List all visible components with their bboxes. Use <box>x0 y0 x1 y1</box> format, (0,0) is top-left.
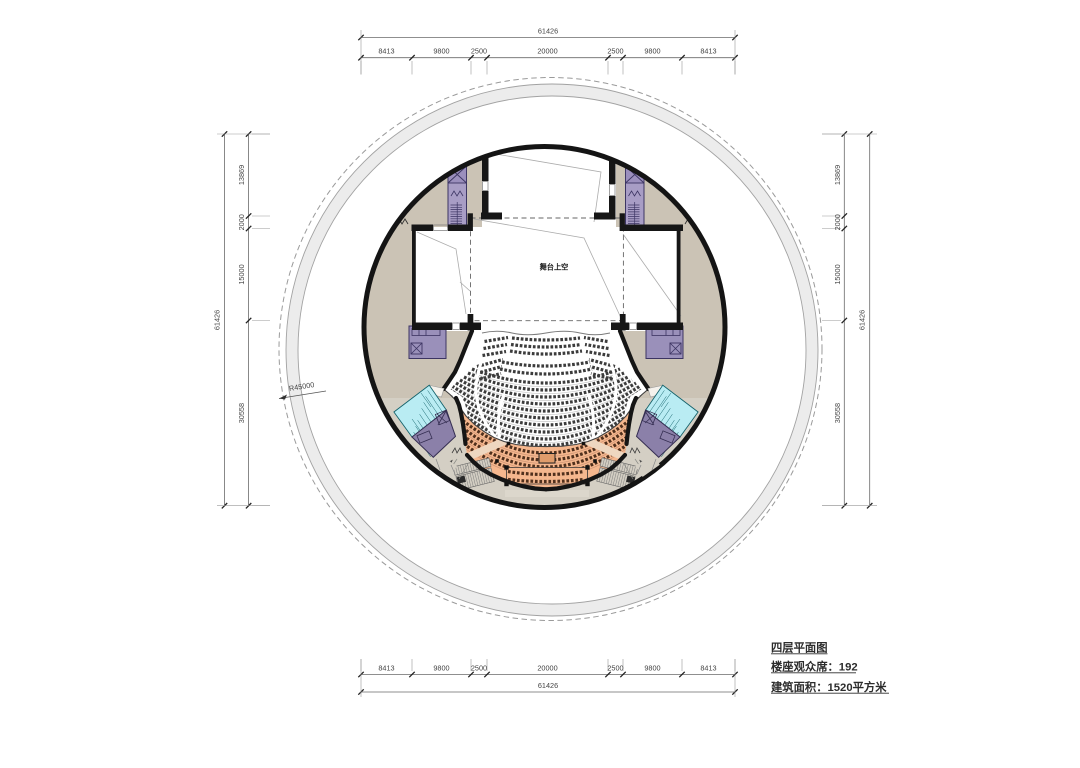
svg-text:15000: 15000 <box>237 264 246 284</box>
svg-text:9800: 9800 <box>644 47 660 56</box>
svg-text:2000: 2000 <box>833 214 842 230</box>
svg-text:2500: 2500 <box>607 47 623 56</box>
svg-text:20000: 20000 <box>537 47 557 56</box>
svg-text:8413: 8413 <box>700 47 716 56</box>
svg-text:20000: 20000 <box>537 664 557 673</box>
svg-text:建筑面积：1520平方米: 建筑面积：1520平方米 <box>770 680 887 694</box>
svg-text:61426: 61426 <box>213 310 222 330</box>
svg-text:13869: 13869 <box>833 165 842 185</box>
svg-text:四层平面图: 四层平面图 <box>771 642 828 655</box>
svg-text:9800: 9800 <box>433 47 449 56</box>
svg-text:15000: 15000 <box>833 264 842 284</box>
svg-text:2500: 2500 <box>471 664 487 673</box>
svg-text:8413: 8413 <box>378 664 394 673</box>
svg-text:楼座观众席：192: 楼座观众席：192 <box>771 660 858 674</box>
svg-text:13869: 13869 <box>237 165 246 185</box>
svg-text:舞台上空: 舞台上空 <box>540 263 569 272</box>
svg-text:61426: 61426 <box>538 681 558 690</box>
svg-text:9800: 9800 <box>644 664 660 673</box>
svg-text:2500: 2500 <box>471 47 487 56</box>
svg-text:8413: 8413 <box>700 664 716 673</box>
svg-text:30558: 30558 <box>833 403 842 423</box>
svg-text:30558: 30558 <box>237 403 246 423</box>
svg-text:2500: 2500 <box>607 664 623 673</box>
svg-text:8413: 8413 <box>378 47 394 56</box>
svg-text:9800: 9800 <box>433 664 449 673</box>
svg-text:2000: 2000 <box>237 214 246 230</box>
svg-text:61426: 61426 <box>858 310 867 330</box>
svg-text:61426: 61426 <box>538 27 558 36</box>
